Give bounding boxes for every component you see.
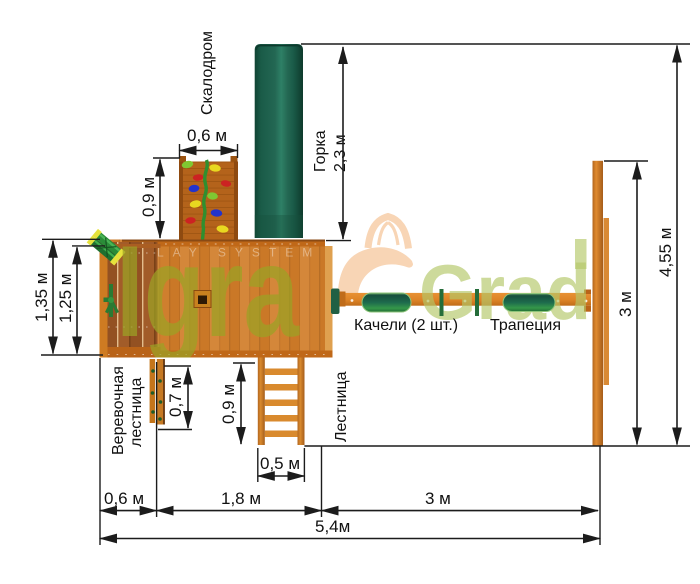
svg-text:0,6 м: 0,6 м <box>104 489 144 508</box>
svg-text:4,55 м: 4,55 м <box>656 228 675 278</box>
svg-text:0,9 м: 0,9 м <box>219 384 238 424</box>
svg-text:0,7 м: 0,7 м <box>166 377 185 417</box>
svg-text:3 м: 3 м <box>425 489 451 508</box>
svg-text:Веревочная: Веревочная <box>110 366 127 455</box>
svg-text:Скалодром: Скалодром <box>199 31 216 115</box>
svg-text:лестница: лестница <box>128 378 145 448</box>
svg-text:1,25 м: 1,25 м <box>56 274 75 324</box>
svg-text:5,4м: 5,4м <box>315 517 350 536</box>
svg-text:Лестница: Лестница <box>333 371 350 442</box>
svg-text:0,9 м: 0,9 м <box>139 177 158 217</box>
svg-text:0,6 м: 0,6 м <box>187 126 227 145</box>
svg-text:Трапеция: Трапеция <box>490 317 561 334</box>
svg-text:1,8 м: 1,8 м <box>221 489 261 508</box>
svg-text:0,5 м: 0,5 м <box>260 454 300 473</box>
svg-text:1,35 м: 1,35 м <box>32 273 51 323</box>
svg-text:Горка: Горка <box>312 130 329 172</box>
svg-text:3 м: 3 м <box>616 291 635 317</box>
svg-text:Качели (2 шт.): Качели (2 шт.) <box>354 317 458 334</box>
svg-text:2,3 м: 2,3 м <box>332 134 349 172</box>
